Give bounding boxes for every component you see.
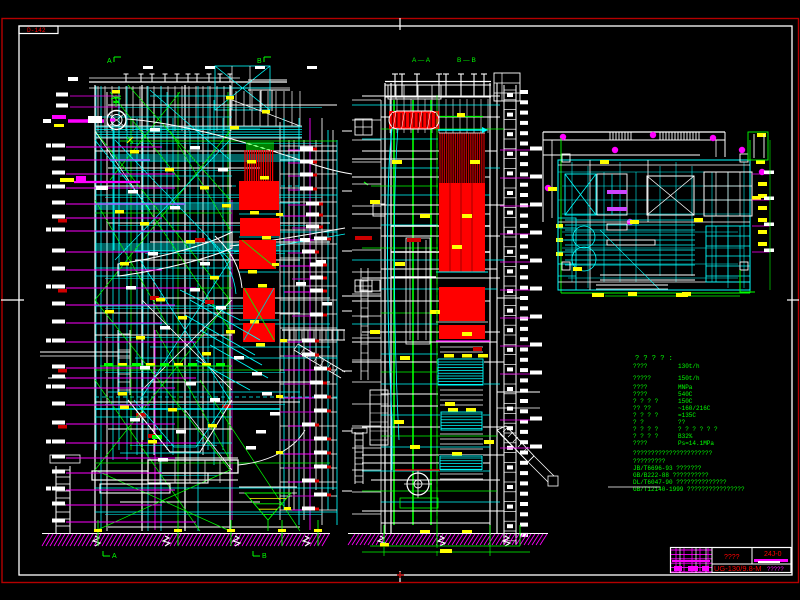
svg-text:540C: 540C [678,391,693,398]
svg-text:????: ???? [633,363,648,370]
svg-text:MNPa: MNPa [678,384,693,391]
svg-text:B32%: B32% [678,433,693,440]
svg-text:?????: ????? [767,567,784,573]
svg-text:D-142: D-142 [27,27,46,34]
svg-text:??: ?? [678,419,686,426]
svg-text:B — B: B — B [457,57,476,64]
svg-text:? ?: ? ? [633,419,644,426]
svg-text:A: A [112,553,117,560]
svg-text:A — A: A — A [412,57,431,64]
svg-text:JB/T6696-93 ???????: JB/T6696-93 ??????? [633,465,702,472]
svg-text:????: ???? [724,554,740,561]
svg-text:UG-130/9.8-M: UG-130/9.8-M [714,564,762,573]
svg-text:B: B [257,58,262,65]
svg-text:A: A [107,58,112,65]
svg-text:????: ???? [633,440,648,447]
svg-text:GB/B222-88 ??????????: GB/B222-88 ?????????? [633,472,709,479]
svg-text:=135C: =135C [678,412,696,419]
svg-text:Ps=14.1MPa: Ps=14.1MPa [678,440,714,447]
svg-text:DL/T6047-90 ??????????????: DL/T6047-90 ?????????????? [633,479,727,486]
svg-text:????: ???? [633,384,648,391]
svg-text:150C: 150C [678,398,693,405]
svg-text:? ? ? ?: ? ? ? ? [633,398,659,405]
svg-text:?????????: ????????? [633,458,666,465]
svg-text:????: ???? [633,391,648,398]
svg-text:? ? ? ?: ? ? ? ? [633,433,659,440]
svg-text:130t/h: 130t/h [678,363,700,370]
svg-text:? ? ? ? ? ?: ? ? ? ? ? ? [678,426,718,433]
svg-text:150t/h: 150t/h [678,375,700,382]
svg-text:~160/216C: ~160/216C [678,405,711,412]
svg-text:B: B [262,553,267,560]
svg-text:?????: ????? [633,375,651,382]
svg-text:? ? ? ?: ? ? ? ? [633,426,659,433]
svg-text:?? ??: ?? ?? [633,405,651,412]
svg-text:? ? ? ?: ? ? ? ? [633,412,659,419]
svg-text:24J-0: 24J-0 [764,551,782,558]
svg-text:? ? ? ? :: ? ? ? ? : [635,355,673,363]
svg-text:??????????????????????: ?????????????????????? [633,450,713,457]
